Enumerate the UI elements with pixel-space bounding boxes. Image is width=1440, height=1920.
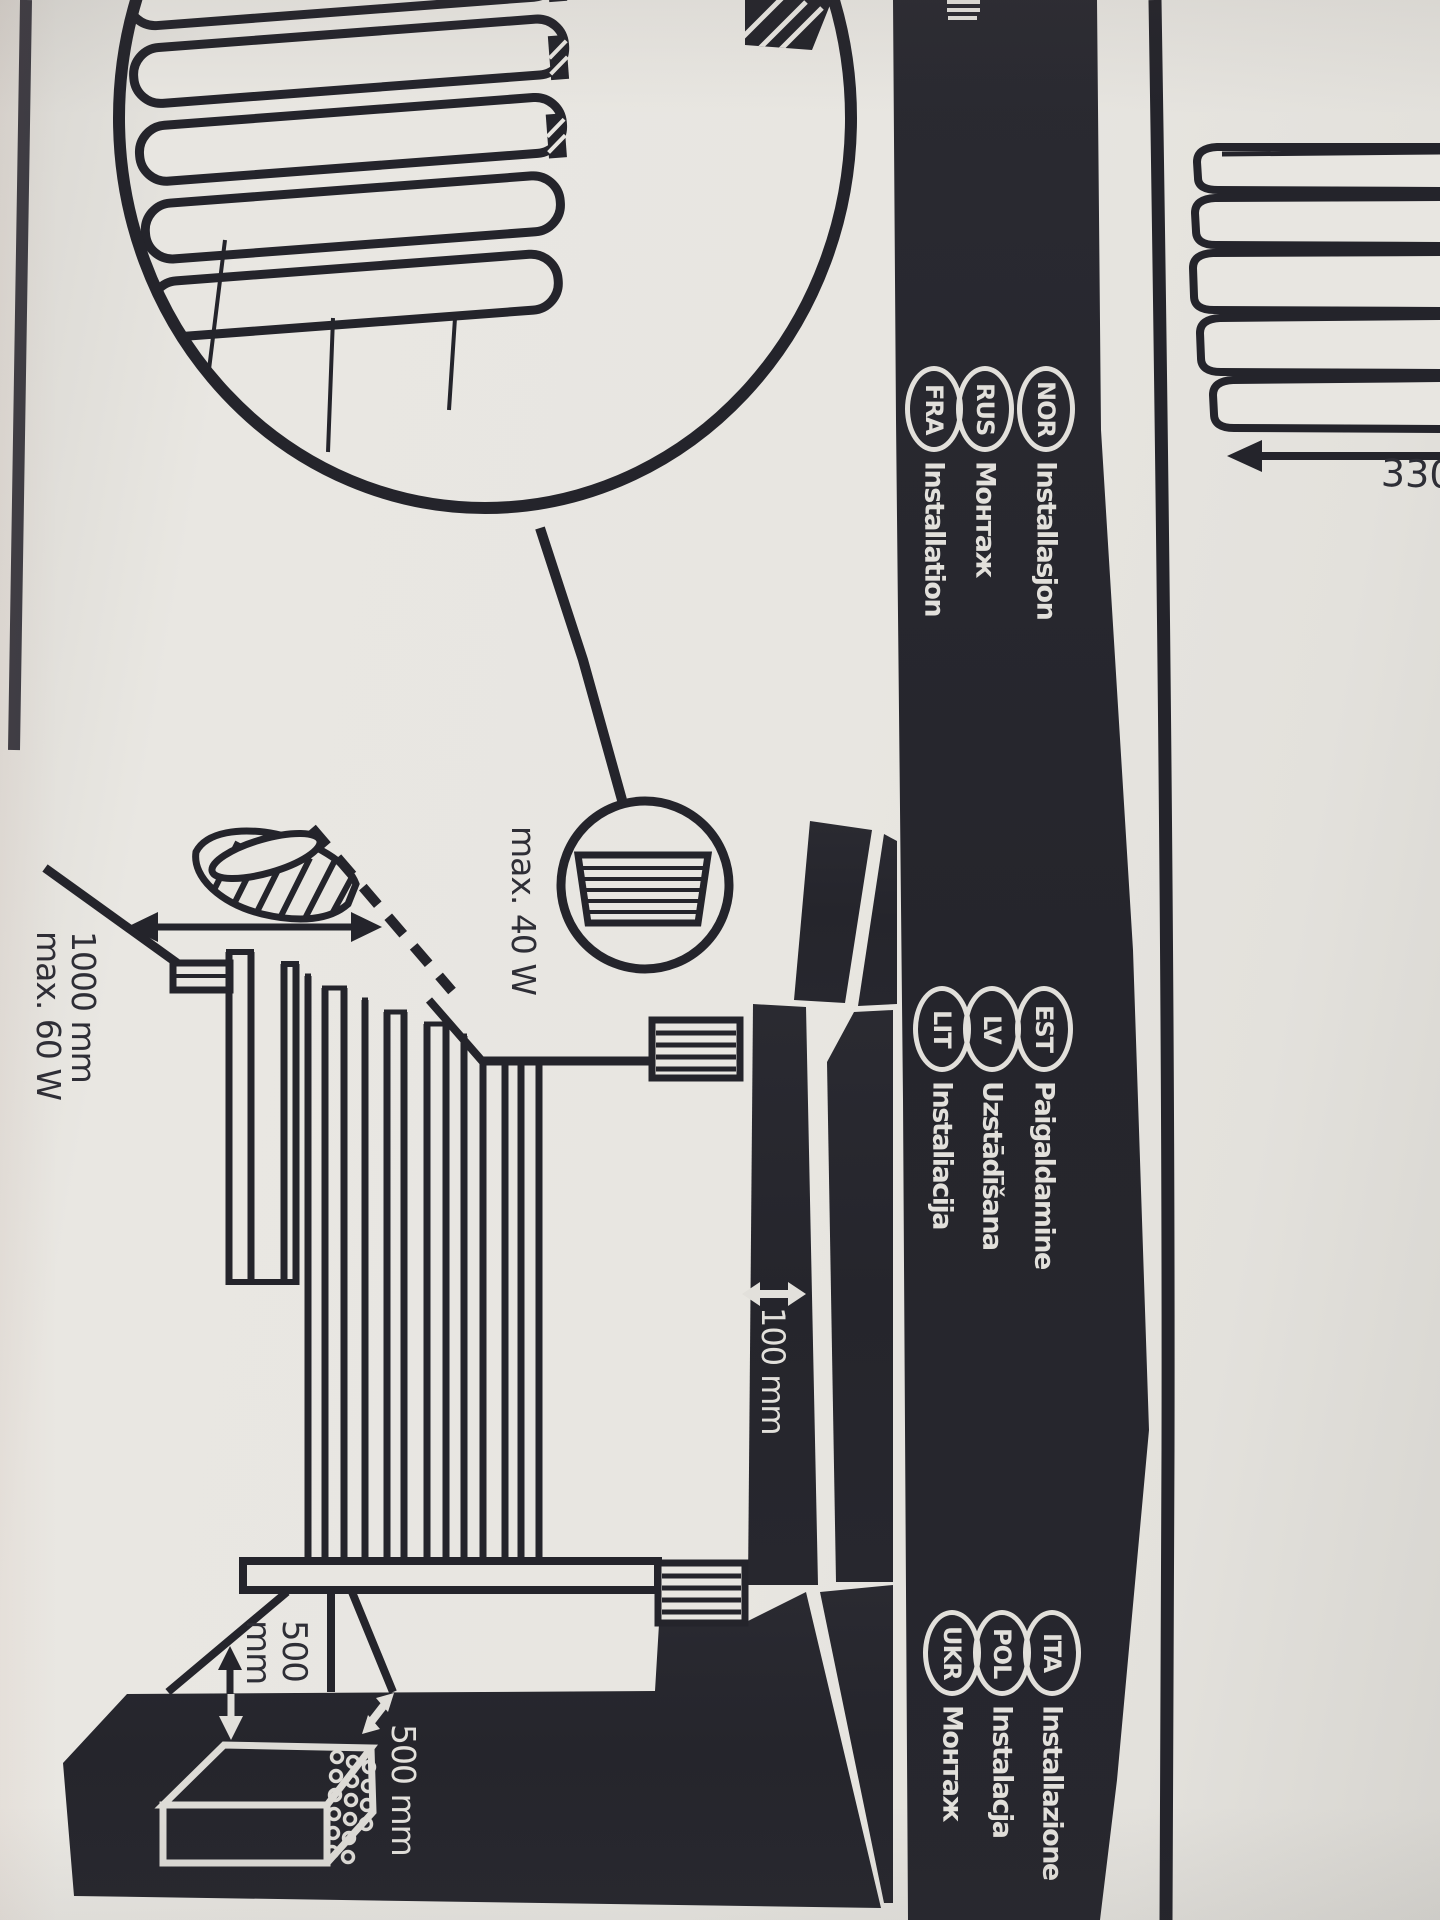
label-500-value: 500 [274, 1620, 314, 1682]
slat-closeup-detail-circle [119, 0, 851, 508]
line-art [0, 0, 1440, 1920]
lang-entry-fra: FRA Installation [905, 366, 963, 616]
lang-code: LV [978, 1015, 1006, 1044]
lang-entry-ita: ITA Installazione [1023, 1610, 1081, 1880]
shade-wattage-circle [561, 801, 729, 969]
lang-badge-pol: POL [973, 1610, 1031, 1696]
adjacent-panel-slat-drawing [1193, 147, 1440, 429]
instruction-sheet-photo: max. 40 W 1000 mm max. 60 W 100 mm 500 m… [0, 0, 1440, 1920]
lang-code: FRA [920, 384, 948, 434]
label-wall-clearance: 100 mm [755, 1307, 789, 1435]
lang-badge-lv: LV [963, 986, 1021, 1072]
lang-label: Installazione [1037, 1705, 1068, 1880]
clip-fragment-top-edge [740, 0, 832, 58]
lang-code: UKR [938, 1626, 966, 1680]
lang-label: Монтаж [937, 1705, 968, 1821]
lang-code: RUS [971, 383, 999, 435]
lang-badge-fra: FRA [905, 366, 963, 452]
lang-code: EST [1030, 1005, 1058, 1052]
lang-label: Монтаж [970, 461, 1001, 577]
right-fold-rule [1155, 0, 1168, 1920]
lang-entry-ukr: UKR Монтаж [923, 1610, 981, 1821]
recessed-uplight-icon [196, 824, 358, 936]
lang-label: Paigaldamine [1029, 1081, 1060, 1269]
left-fold-rule [14, 0, 26, 750]
lang-entry-lit: LIT Instaliacija [913, 986, 971, 1229]
lang-label: Installation [919, 461, 950, 616]
lang-entry-rus: RUS Монтаж [956, 366, 1014, 577]
pendant-lamp-drawing [168, 952, 658, 1692]
lang-badge-est: EST [1015, 986, 1073, 1072]
label-shade-max-wattage: max. 40 W [505, 826, 540, 995]
leader-line [540, 528, 622, 800]
lang-code: LIT [928, 1010, 956, 1048]
lang-badge-rus: RUS [956, 366, 1014, 452]
dimension-arrow-1000mm [127, 912, 382, 942]
lang-code: NOR [1032, 381, 1060, 437]
label-500-unit: mm [238, 1620, 278, 1684]
ceiling-slab [794, 821, 872, 1003]
wall-side [827, 1010, 893, 1582]
lang-label: Installasjon [1031, 461, 1062, 619]
lang-label: Uzstādīšana [977, 1081, 1008, 1250]
lang-entry-pol: POL Instalacja [973, 1610, 1031, 1837]
label-driver-clearance-horizontal: 500 mm [385, 1724, 420, 1856]
slat-closeup-drawing [126, 0, 590, 452]
label-max-60w: max. 60 W [29, 931, 68, 1100]
lang-entry-nor: NOR Installasjon [1017, 366, 1075, 619]
lang-badge-ita: ITA [1023, 1610, 1081, 1696]
lang-label: Instaliacija [927, 1081, 958, 1229]
label-driver-clearance-vertical: 500 mm [240, 1620, 312, 1684]
lang-badge-ukr: UKR [923, 1610, 981, 1696]
lang-badge-nor: NOR [1017, 366, 1075, 452]
lang-entry-est: EST Paigaldamine [1015, 986, 1073, 1269]
lang-badge-lit: LIT [913, 986, 971, 1072]
band-top-icon-fragment [947, 0, 980, 20]
mounting-box-bottom-icon [658, 1563, 745, 1623]
label-adjacent-panel-dimension: 330 [1380, 451, 1440, 497]
lang-entry-lv: LV Uzstādīšana [963, 986, 1021, 1250]
lang-code: POL [988, 1628, 1016, 1678]
slatted-shade-icon [574, 855, 712, 923]
label-1000mm: 1000 mm [64, 931, 103, 1083]
lang-code: ITA [1038, 1633, 1066, 1672]
lamp-top-edge [429, 1000, 483, 1062]
mounting-box-top-icon [652, 1020, 740, 1078]
label-uplight-distance-block: 1000 mm max. 60 W [30, 931, 100, 1100]
lang-label: Instalacja [987, 1705, 1018, 1837]
bottom-rail [243, 1561, 658, 1590]
